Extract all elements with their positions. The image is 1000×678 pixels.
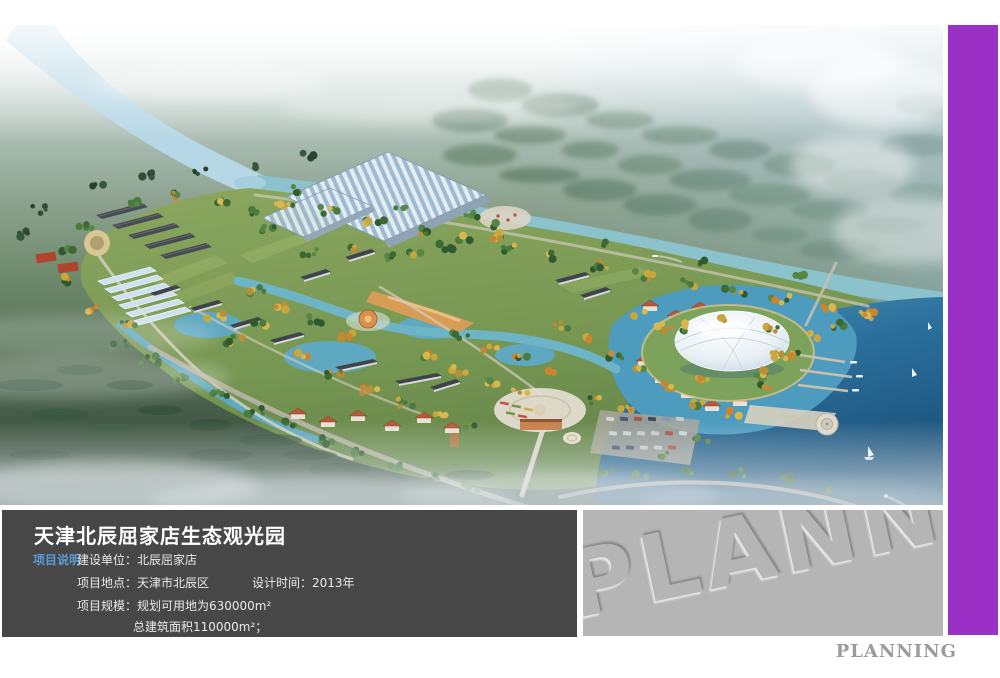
section-label: 项目说明 (33, 551, 81, 568)
total-building-area: 总建筑面积110000m²； (133, 618, 267, 635)
bottom-fog (0, 420, 943, 505)
watermark-panel: PLANNING (583, 510, 943, 636)
project-location: 项目地点：天津市北辰区 (77, 574, 209, 591)
canal-junction (234, 176, 266, 190)
project-title: 天津北辰屈家店生态观光园 (34, 520, 286, 549)
construction-unit: 建设单位：北辰屈家店 (77, 551, 197, 568)
planning-footer: PLANNING (836, 641, 957, 662)
aerial-rendering (0, 25, 943, 505)
project-info-panel: 天津北辰屈家店生态观光园 项目说明 建设单位：北辰屈家店 项目地点：天津市北辰区… (2, 510, 577, 637)
design-time: 设计时间：2013年 (252, 574, 355, 591)
accent-bar (948, 25, 998, 635)
presentation-board: 天津北辰屈家店生态观光园 项目说明 建设单位：北辰屈家店 项目地点：天津市北辰区… (0, 0, 1000, 678)
project-scale: 项目规模：规划可用地为630000m² (77, 597, 271, 614)
planning-watermark: PLANNING (583, 510, 943, 636)
